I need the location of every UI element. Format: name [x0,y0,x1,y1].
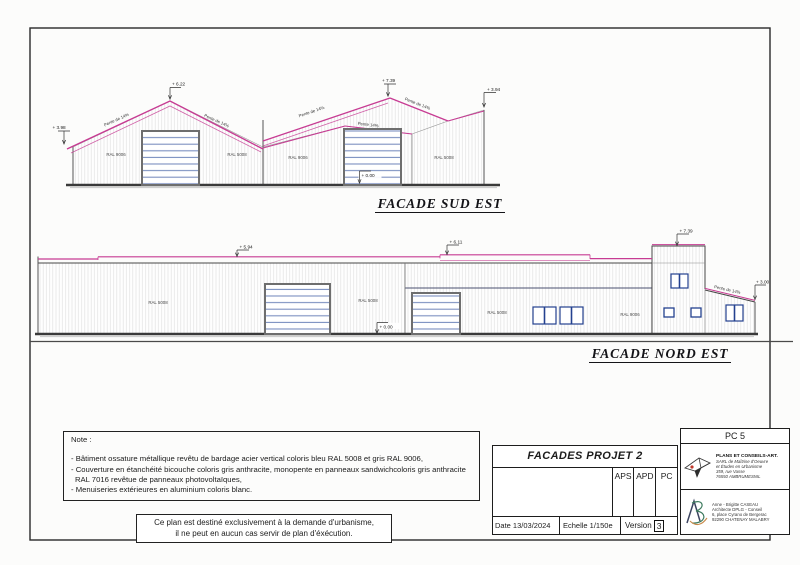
facade-sud-est-drawing: + 3.98 + 6.22 + 7.39 + 3.94 + 0.00 Pente… [53,78,501,188]
firm-text: PLANS ET CONSEILS-ART. SARL de Maîtrise … [716,454,778,479]
dimension-label: + 0.00 [380,324,394,329]
version-label: Version [625,521,652,530]
dimension-peak-left: + 6.22 [168,82,185,100]
disclaimer-line: il ne peut en aucun cas servir de plan d… [139,528,389,539]
dimension-594: + 5.94 [235,245,253,257]
architect-line: 92290 CHATENAY MALABRY [712,517,769,522]
dimension-eave-left: + 3.98 [53,125,71,144]
wall-tower [652,246,705,334]
sheet-number: PC 5 [680,428,790,444]
firm-line: 76550 AMBRUMESNIL [716,474,778,479]
phase-aps: APS [612,468,634,516]
version-cell: Version 3 [620,517,677,534]
title-block-bottom-row: Date 13/03/2024 Echelle 1/150e Version 3 [493,517,677,534]
disclaimer-box: Ce plan est destiné exclusivement à la d… [136,514,392,543]
window-small [691,308,701,317]
firm-cell: PLANS ET CONSEILS-ART. SARL de Maîtrise … [680,444,790,490]
dimension-label: + 0.00 [362,173,376,178]
ral-label: RAL 5008 [227,152,247,157]
dimension-611: + 6.11 [445,240,462,255]
firm-logo-icon [683,454,713,480]
ral-label: RAL 5008 [148,300,168,305]
facade-nord-est-title-text: FACADE NORD EST [589,346,732,363]
note-box: Note : - Bâtiment ossature métallique re… [63,431,480,501]
note-item: - Menuiseries extérieures en aluminium c… [71,485,472,495]
note-heading: Note : [71,435,472,445]
dimension-peak-right: + 7.39 [382,78,396,96]
title-block: FACADES PROJET 2 APS APD PC Date 13/03/2… [492,445,678,535]
phase-pc: PC [655,468,677,516]
wall-main-hall [38,263,405,334]
project-title: FACADES PROJET 2 [493,446,677,468]
phase-apd: APD [633,468,655,516]
sectional-door [412,293,460,334]
ral-label: RAL 9006 [620,312,640,317]
phase-spacer [493,468,612,516]
title-block-right: PC 5 PLANS ET CONSEILS-ART. SARL de Maît… [680,428,790,535]
architect-monogram-icon [683,496,709,528]
phase-row: APS APD PC [493,468,677,517]
disclaimer-line: Ce plan est destiné exclusivement à la d… [139,517,389,528]
ral-label: RAL 9006 [106,152,126,157]
dimension-739: + 7.39 [675,229,693,246]
wall-rear-strip [405,263,652,288]
facade-sud-est-title-text: FACADE SUD EST [375,196,506,213]
version-value: 3 [654,520,665,532]
architect-cell: Anne - Brigitte CASEAU Architecte DPLG -… [680,490,790,535]
date-cell: Date 13/03/2024 [493,517,559,534]
facade-nord-est-title: FACADE NORD EST [575,345,745,363]
dimension-label: + 7.39 [382,78,396,83]
note-item: - Couverture en étanchéité bicouche colo… [71,465,472,486]
dimension-300: + 3.00 [753,280,769,300]
dimension-label: + 5.94 [240,245,254,250]
note-item: - Bâtiment ossature métallique revêtu de… [71,454,472,464]
slope-label: Pente de 14% [298,105,325,119]
dimension-label: + 7.39 [680,229,694,234]
window-small [664,308,674,317]
sectional-door [142,131,199,185]
ral-label: RAL 5008 [434,155,454,160]
dimension-label: + 6.22 [172,82,186,87]
ral-label: RAL 5008 [358,298,378,303]
sectional-door [265,284,330,334]
ral-label: RAL 5008 [487,310,507,315]
dimension-label: + 3.94 [487,87,501,92]
dimension-label: + 3.00 [756,280,770,285]
facade-nord-est-drawing: + 5.94 + 6.11 + 7.39 + 3.00 + 0.00 Pente… [30,229,793,342]
architect-text: Anne - Brigitte CASEAU Architecte DPLG -… [712,502,769,523]
dimension-eave-right: + 3.94 [482,87,500,107]
facade-sud-est-title: FACADE SUD EST [355,195,525,213]
dimension-label: + 6.11 [450,240,463,245]
ral-label: RAL 9006 [288,155,308,160]
scale-cell: Echelle 1/150e [559,517,620,534]
dimension-label: + 3.98 [53,125,67,130]
